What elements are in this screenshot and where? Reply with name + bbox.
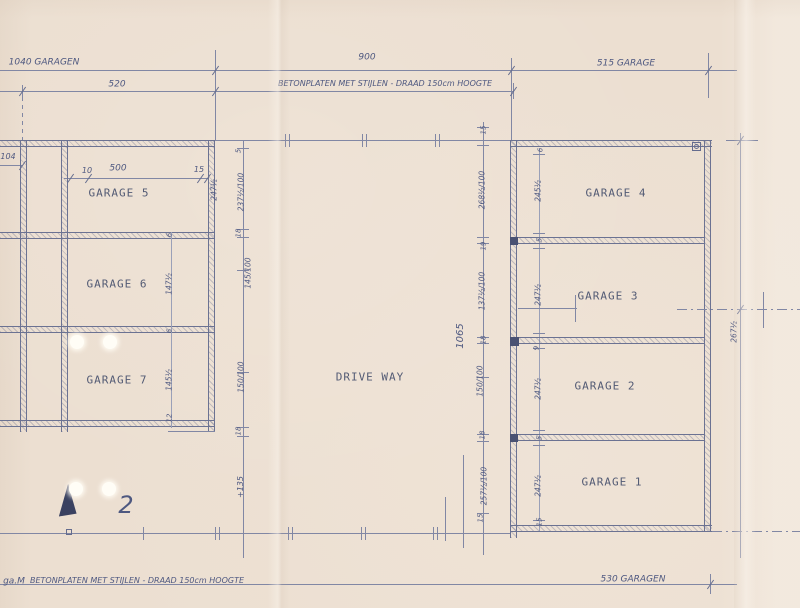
plan-line [289,134,290,147]
dim-label: 237½/100 [237,173,245,211]
plan-line [477,441,489,442]
plan-line [215,50,216,140]
dim-g5-wall: 15 [194,166,204,174]
plan-line [533,445,545,446]
plan-line [726,140,758,141]
plan-line [237,436,249,437]
driveway-label: DRIVE WAY [336,372,405,383]
plan-line [518,308,577,309]
scanned-blueprint: GARAGE 5GARAGE 6GARAGE 7GARAGE 4GARAGE 3… [0,0,800,608]
post-symbol [510,237,518,245]
wall [518,237,704,244]
room-label-garage-1: GARAGE 1 [582,477,643,488]
plan-line [477,145,489,146]
dim-label: 5 [537,238,544,242]
punch-hole [102,482,116,496]
dim-g5-width: 500 [109,165,126,174]
wall [518,434,704,441]
wall [20,140,27,432]
plan-line [288,527,289,540]
dim-top-middle: 900 [358,54,375,63]
dim-top-right: 515 GARAGE [597,60,655,69]
dim-label: 6 [167,329,174,333]
wall [0,420,215,427]
dim-left-bay: 520 [108,81,125,90]
dim-label: 247½ [534,378,542,400]
plan-layer: GARAGE 5GARAGE 6GARAGE 7GARAGE 4GARAGE 3… [0,0,800,608]
plan-line [0,165,22,166]
plan-line [143,527,144,540]
dim-right-edge: 267½ [730,321,738,343]
plan-line [64,178,208,179]
fence-note-bottom: BETONPLATEN MET STIJLEN - DRAAD 150cm HO… [30,577,244,585]
dim-label: 145/100 [244,257,252,288]
plan-line [285,134,286,147]
dim-bottom-right: 530 GARAGEN [601,576,666,585]
dim-label: 12 [167,414,174,423]
dim-label: 245½ [534,180,542,202]
post-symbol [66,529,72,535]
plan-line [763,292,764,328]
room-label-garage-2: GARAGE 2 [575,381,636,392]
wall [704,140,711,532]
sheet-number: 2 [118,493,133,517]
dim-label: +135 [237,476,245,498]
plan-line [219,527,220,540]
punch-hole [103,335,117,349]
dim-label: 6 [167,233,174,237]
plan-line [0,91,513,92]
fence-note-top: BETONPLATEN MET STIJLEN - DRAAD 150cm HO… [278,80,492,88]
dim-label: 247½ [534,475,542,497]
plan-line [477,237,489,238]
dim-label: 15 [537,518,544,527]
plan-line [0,70,737,71]
dim-label: 18 [236,427,243,436]
dim-label: 247½ [210,179,218,201]
wall [0,326,215,333]
plan-line [435,134,436,147]
plan-line [439,134,440,147]
plan-line [292,527,293,540]
dim-label: 5 [537,436,544,440]
plan-line [366,134,367,147]
plan-line [533,248,545,249]
dim-label: 19 [481,242,488,251]
post-symbol [510,434,518,442]
dim-label: 257½/100 [480,467,488,505]
dim-label: 18 [236,229,243,238]
plan-line [445,497,446,541]
dim-label: 150/100 [237,361,245,392]
room-label-garage-6: GARAGE 6 [87,279,148,290]
plan-line [361,527,362,540]
dim-label: 247½ [534,284,542,306]
plan-line [740,133,741,558]
dim-label: 15 [478,514,485,523]
dim-label: 137½/100 [478,272,486,310]
dim-label: 150/100 [476,365,484,396]
dim-label: 5 [236,149,243,153]
plan-line [365,527,366,540]
centerline [712,531,800,532]
dim-label: 18 [480,431,487,440]
room-label-garage-7: GARAGE 7 [87,375,148,386]
plan-line [533,333,545,334]
plan-line [533,430,545,431]
dim-g5-offset: 10 [82,167,92,175]
plan-line [463,455,464,548]
dim-label: 145½ [165,369,173,391]
wall [0,140,215,147]
dim-total-left: 1040 GARAGEN [9,59,80,68]
dim-label: 147½ [165,273,173,295]
plan-line [215,527,216,540]
plan-line [437,527,438,540]
wall [0,232,215,239]
room-label-garage-4: GARAGE 4 [586,188,647,199]
plan-line [433,527,434,540]
punch-hole [69,482,83,496]
wall [510,140,712,147]
door-pivot-symbol [694,144,699,149]
wall [61,140,68,432]
plan-line [362,134,363,147]
dim-label: 9 [534,346,541,350]
dim-driveway-length: 1065 [456,323,466,348]
dim-left-cut: 104 [0,153,15,161]
plan-line-dashed [22,97,23,140]
wall [518,337,704,344]
plan-line [168,431,215,432]
plan-line [575,295,576,322]
plan-line [533,233,545,234]
dim-label: 15 [481,126,488,135]
room-label-garage-3: GARAGE 3 [578,291,639,302]
dim-label: 6 [538,148,545,152]
punch-hole [70,335,84,349]
note-bottom-left: ga.M [3,578,25,587]
plan-line [708,53,709,98]
dim-label: 268½/100 [478,171,486,209]
post-symbol [510,337,519,346]
dim-label: 18 [481,336,488,345]
plan-line [533,154,545,155]
room-label-garage-5: GARAGE 5 [89,188,150,199]
